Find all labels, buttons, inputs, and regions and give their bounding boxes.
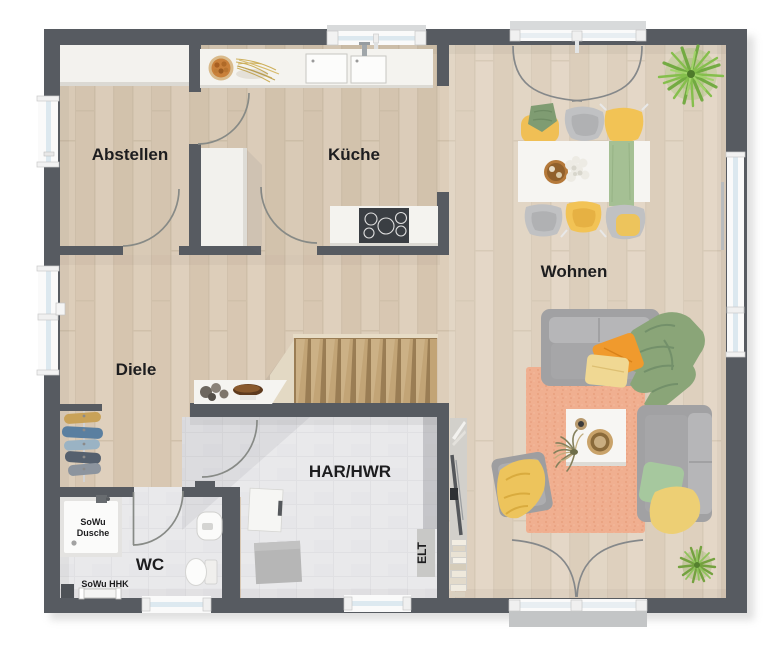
svg-text:Diele: Diele	[116, 360, 157, 379]
svg-text:SoWu HHK: SoWu HHK	[81, 579, 129, 589]
svg-text:ELT: ELT	[415, 541, 429, 563]
svg-text:SoWu: SoWu	[80, 517, 105, 527]
svg-text:HAR/HWR: HAR/HWR	[309, 462, 391, 481]
svg-text:Küche: Küche	[328, 145, 380, 164]
svg-text:Wohnen: Wohnen	[541, 262, 608, 281]
svg-text:Abstellen: Abstellen	[92, 145, 169, 164]
svg-text:WC: WC	[136, 555, 164, 574]
svg-text:Dusche: Dusche	[77, 528, 110, 538]
